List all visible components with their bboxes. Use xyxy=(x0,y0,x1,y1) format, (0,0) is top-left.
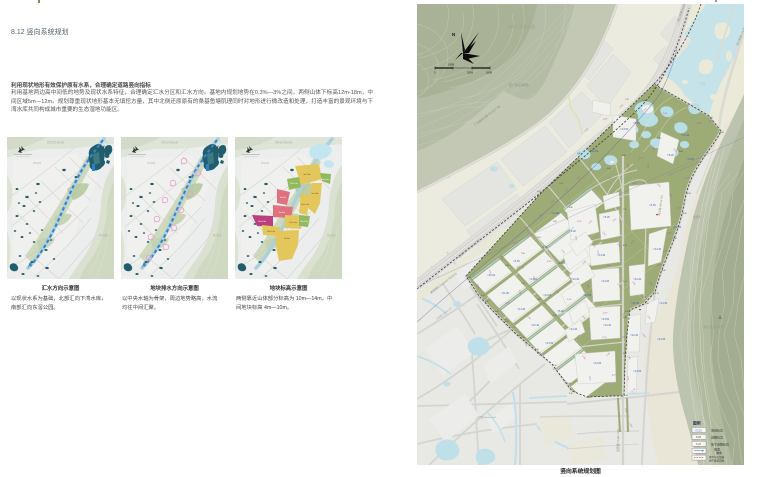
svg-text:坡向: 坡向 xyxy=(716,450,722,455)
svg-text:地下道路标高: 地下道路标高 xyxy=(711,441,729,446)
svg-text:9.00: 9.00 xyxy=(601,133,605,135)
svg-text:12m-14m: 12m-14m xyxy=(258,221,266,223)
svg-text:1.5%: 1.5% xyxy=(602,337,607,339)
svg-text:7.90: 7.90 xyxy=(521,253,525,255)
svg-text:▽12.40: ▽12.40 xyxy=(630,334,639,337)
svg-text:北岭山生态公园: 北岭山生态公园 xyxy=(47,140,64,144)
svg-text:▽13.20: ▽13.20 xyxy=(657,338,666,341)
svg-text:9.00: 9.00 xyxy=(607,168,611,170)
svg-text:6.80: 6.80 xyxy=(577,153,581,155)
svg-text:知识城: 知识城 xyxy=(517,265,525,269)
svg-text:2.5%: 2.5% xyxy=(632,183,637,185)
svg-text:▽5.20: ▽5.20 xyxy=(557,310,564,313)
svg-text:▽11.80: ▽11.80 xyxy=(631,302,640,305)
svg-text:迎宾路 Yingbin Rd: 迎宾路 Yingbin Rd xyxy=(616,429,620,452)
svg-text:4.80: 4.80 xyxy=(679,151,683,153)
svg-text:▽5.20: ▽5.20 xyxy=(695,428,703,432)
svg-text:7.90: 7.90 xyxy=(625,99,629,101)
svg-text:N: N xyxy=(452,32,455,37)
svg-text:▽13.50: ▽13.50 xyxy=(620,128,629,131)
svg-text:4.80: 4.80 xyxy=(505,265,509,267)
svg-text:5.20: 5.20 xyxy=(696,442,702,446)
svg-text:9.00: 9.00 xyxy=(624,395,628,397)
svg-text:9.00: 9.00 xyxy=(521,337,525,339)
svg-text:8.10: 8.10 xyxy=(537,353,541,355)
svg-text:0.8%: 0.8% xyxy=(511,327,516,329)
svg-text:7.90: 7.90 xyxy=(503,319,507,321)
svg-text:6.80: 6.80 xyxy=(625,311,629,313)
svg-text:4.80: 4.80 xyxy=(569,207,573,209)
svg-text:0.8%: 0.8% xyxy=(539,355,544,357)
svg-text:7.20: 7.20 xyxy=(559,183,563,185)
svg-text:▽12.90: ▽12.90 xyxy=(557,262,566,265)
svg-text:1.2%: 1.2% xyxy=(607,178,612,180)
svg-text:5.60: 5.60 xyxy=(553,221,557,223)
svg-text:▽4.50: ▽4.50 xyxy=(513,260,520,263)
svg-text:7.90: 7.90 xyxy=(537,299,541,301)
svg-text:场地标高: 场地标高 xyxy=(711,428,723,433)
svg-text:10m-14m: 10m-14m xyxy=(267,231,275,233)
svg-text:▽13.50: ▽13.50 xyxy=(601,318,610,321)
svg-text:▽12.90: ▽12.90 xyxy=(593,362,602,365)
svg-text:2.0%: 2.0% xyxy=(607,265,612,267)
svg-text:经广深高速两线: 经广深高速两线 xyxy=(509,83,529,87)
svg-text:▽4.50: ▽4.50 xyxy=(541,246,548,249)
svg-text:4.80: 4.80 xyxy=(720,132,724,134)
svg-text:1.5%: 1.5% xyxy=(541,303,546,305)
svg-text:12m-14m: 12m-14m xyxy=(290,183,298,185)
svg-text:6.80: 6.80 xyxy=(687,193,691,195)
svg-text:▽5.20: ▽5.20 xyxy=(569,230,576,233)
svg-text:4m-6m: 4m-6m xyxy=(284,238,290,240)
svg-text:▽5.20: ▽5.20 xyxy=(633,122,640,125)
svg-text:▽4.50: ▽4.50 xyxy=(649,204,656,207)
svg-text:7.90: 7.90 xyxy=(553,365,557,367)
svg-text:100M: 100M xyxy=(448,64,454,67)
svg-text:▽5.20: ▽5.20 xyxy=(667,154,674,157)
svg-text:▽12.90: ▽12.90 xyxy=(590,150,599,153)
svg-text:5.60: 5.60 xyxy=(553,315,557,317)
svg-text:6.80: 6.80 xyxy=(495,311,499,313)
svg-text:▽12.40: ▽12.40 xyxy=(673,226,682,229)
svg-text:▽14.30: ▽14.30 xyxy=(659,302,668,305)
svg-text:12m-14m: 12m-14m xyxy=(289,222,297,224)
svg-text:4.80: 4.80 xyxy=(505,321,509,323)
svg-text:北岭山生态公园: 北岭山生态公园 xyxy=(275,140,292,144)
svg-text:▽12.40: ▽12.40 xyxy=(571,278,580,281)
svg-text:10m-14m: 10m-14m xyxy=(300,221,308,223)
svg-text:▽14.30: ▽14.30 xyxy=(601,280,610,283)
svg-text:12m-14m: 12m-14m xyxy=(321,179,329,181)
svg-text:▽12.00: ▽12.00 xyxy=(543,294,552,297)
svg-text:道路标高: 道路标高 xyxy=(711,434,723,439)
svg-text:北岭山生态公园: 北岭山生态公园 xyxy=(507,23,535,29)
svg-text:▽4.50: ▽4.50 xyxy=(687,158,694,161)
svg-text:5.60: 5.60 xyxy=(467,277,471,279)
svg-text:▽14.30: ▽14.30 xyxy=(517,308,526,311)
svg-text:▽12.40: ▽12.40 xyxy=(531,324,540,327)
svg-text:图例: 图例 xyxy=(693,421,701,426)
svg-text:▽13.50: ▽13.50 xyxy=(583,294,592,297)
svg-text:地下通道范围: 地下通道范围 xyxy=(709,458,725,462)
svg-text:北岭山生态公园: 北岭山生态公园 xyxy=(161,140,178,144)
svg-text:▽14.30: ▽14.30 xyxy=(653,248,662,251)
svg-text:5.60: 5.60 xyxy=(587,397,591,399)
svg-text:7.20: 7.20 xyxy=(623,209,627,211)
svg-text:6.80: 6.80 xyxy=(673,238,677,240)
svg-text:▽14.30: ▽14.30 xyxy=(597,254,606,257)
svg-text:▽11.80: ▽11.80 xyxy=(501,292,510,295)
svg-text:12m-14m: 12m-14m xyxy=(301,204,309,206)
svg-text:9.00: 9.00 xyxy=(622,155,626,157)
svg-text:2.5%: 2.5% xyxy=(567,203,572,205)
svg-text:300M: 300M xyxy=(486,72,492,75)
svg-text:7.20: 7.20 xyxy=(601,168,606,171)
svg-text:0.8%: 0.8% xyxy=(547,261,552,263)
svg-text:200M: 200M xyxy=(467,72,473,75)
svg-text:8.10: 8.10 xyxy=(655,293,659,295)
svg-text:6m-8m: 6m-8m xyxy=(280,197,286,199)
svg-text:4m-6m: 4m-6m xyxy=(279,212,285,214)
svg-text:2.0%: 2.0% xyxy=(663,113,668,115)
svg-text:8.10: 8.10 xyxy=(535,349,539,351)
svg-text:下湾: 下湾 xyxy=(699,81,705,86)
svg-text:3.0%: 3.0% xyxy=(577,221,582,223)
svg-text:5.20: 5.20 xyxy=(696,435,702,439)
svg-text:9.00: 9.00 xyxy=(623,353,627,355)
svg-text:8.10: 8.10 xyxy=(569,393,573,395)
svg-text:6.80: 6.80 xyxy=(683,213,687,215)
svg-text:▽12.90: ▽12.90 xyxy=(551,212,560,215)
svg-text:5.60: 5.60 xyxy=(623,317,627,319)
svg-text:3.0%: 3.0% xyxy=(567,299,572,301)
svg-text:▽13.50: ▽13.50 xyxy=(633,370,642,373)
svg-text:▽12.00: ▽12.00 xyxy=(487,274,496,277)
svg-text:7.20: 7.20 xyxy=(657,138,661,140)
svg-text:7.90: 7.90 xyxy=(645,303,649,305)
svg-text:6.80: 6.80 xyxy=(662,270,666,272)
svg-text:规划区: 规划区 xyxy=(693,215,701,219)
svg-text:▽13.50: ▽13.50 xyxy=(545,342,554,345)
svg-text:9.00: 9.00 xyxy=(537,237,541,239)
svg-text:7.20: 7.20 xyxy=(521,283,525,285)
svg-text:▽12.40: ▽12.40 xyxy=(681,134,690,137)
svg-text:8.10: 8.10 xyxy=(623,245,627,247)
svg-text:9.00: 9.00 xyxy=(481,295,485,297)
svg-text:7.90: 7.90 xyxy=(642,100,646,102)
svg-text:7.20: 7.20 xyxy=(623,281,627,283)
svg-text:8m-10m: 8m-10m xyxy=(312,193,319,195)
svg-text:▽12.40: ▽12.40 xyxy=(569,328,578,331)
svg-text:▽12.40: ▽12.40 xyxy=(633,278,642,281)
svg-text:7.20: 7.20 xyxy=(567,383,571,385)
svg-text:9.00: 9.00 xyxy=(537,191,541,193)
svg-text:▽14.30: ▽14.30 xyxy=(603,324,612,327)
svg-text:8.10: 8.10 xyxy=(485,301,489,303)
svg-text:7.20: 7.20 xyxy=(709,117,713,119)
svg-text:凤山生态公园: 凤山生态公园 xyxy=(703,324,724,329)
svg-text:8m-10m: 8m-10m xyxy=(304,174,311,176)
svg-text:▽5.20: ▽5.20 xyxy=(603,216,610,219)
